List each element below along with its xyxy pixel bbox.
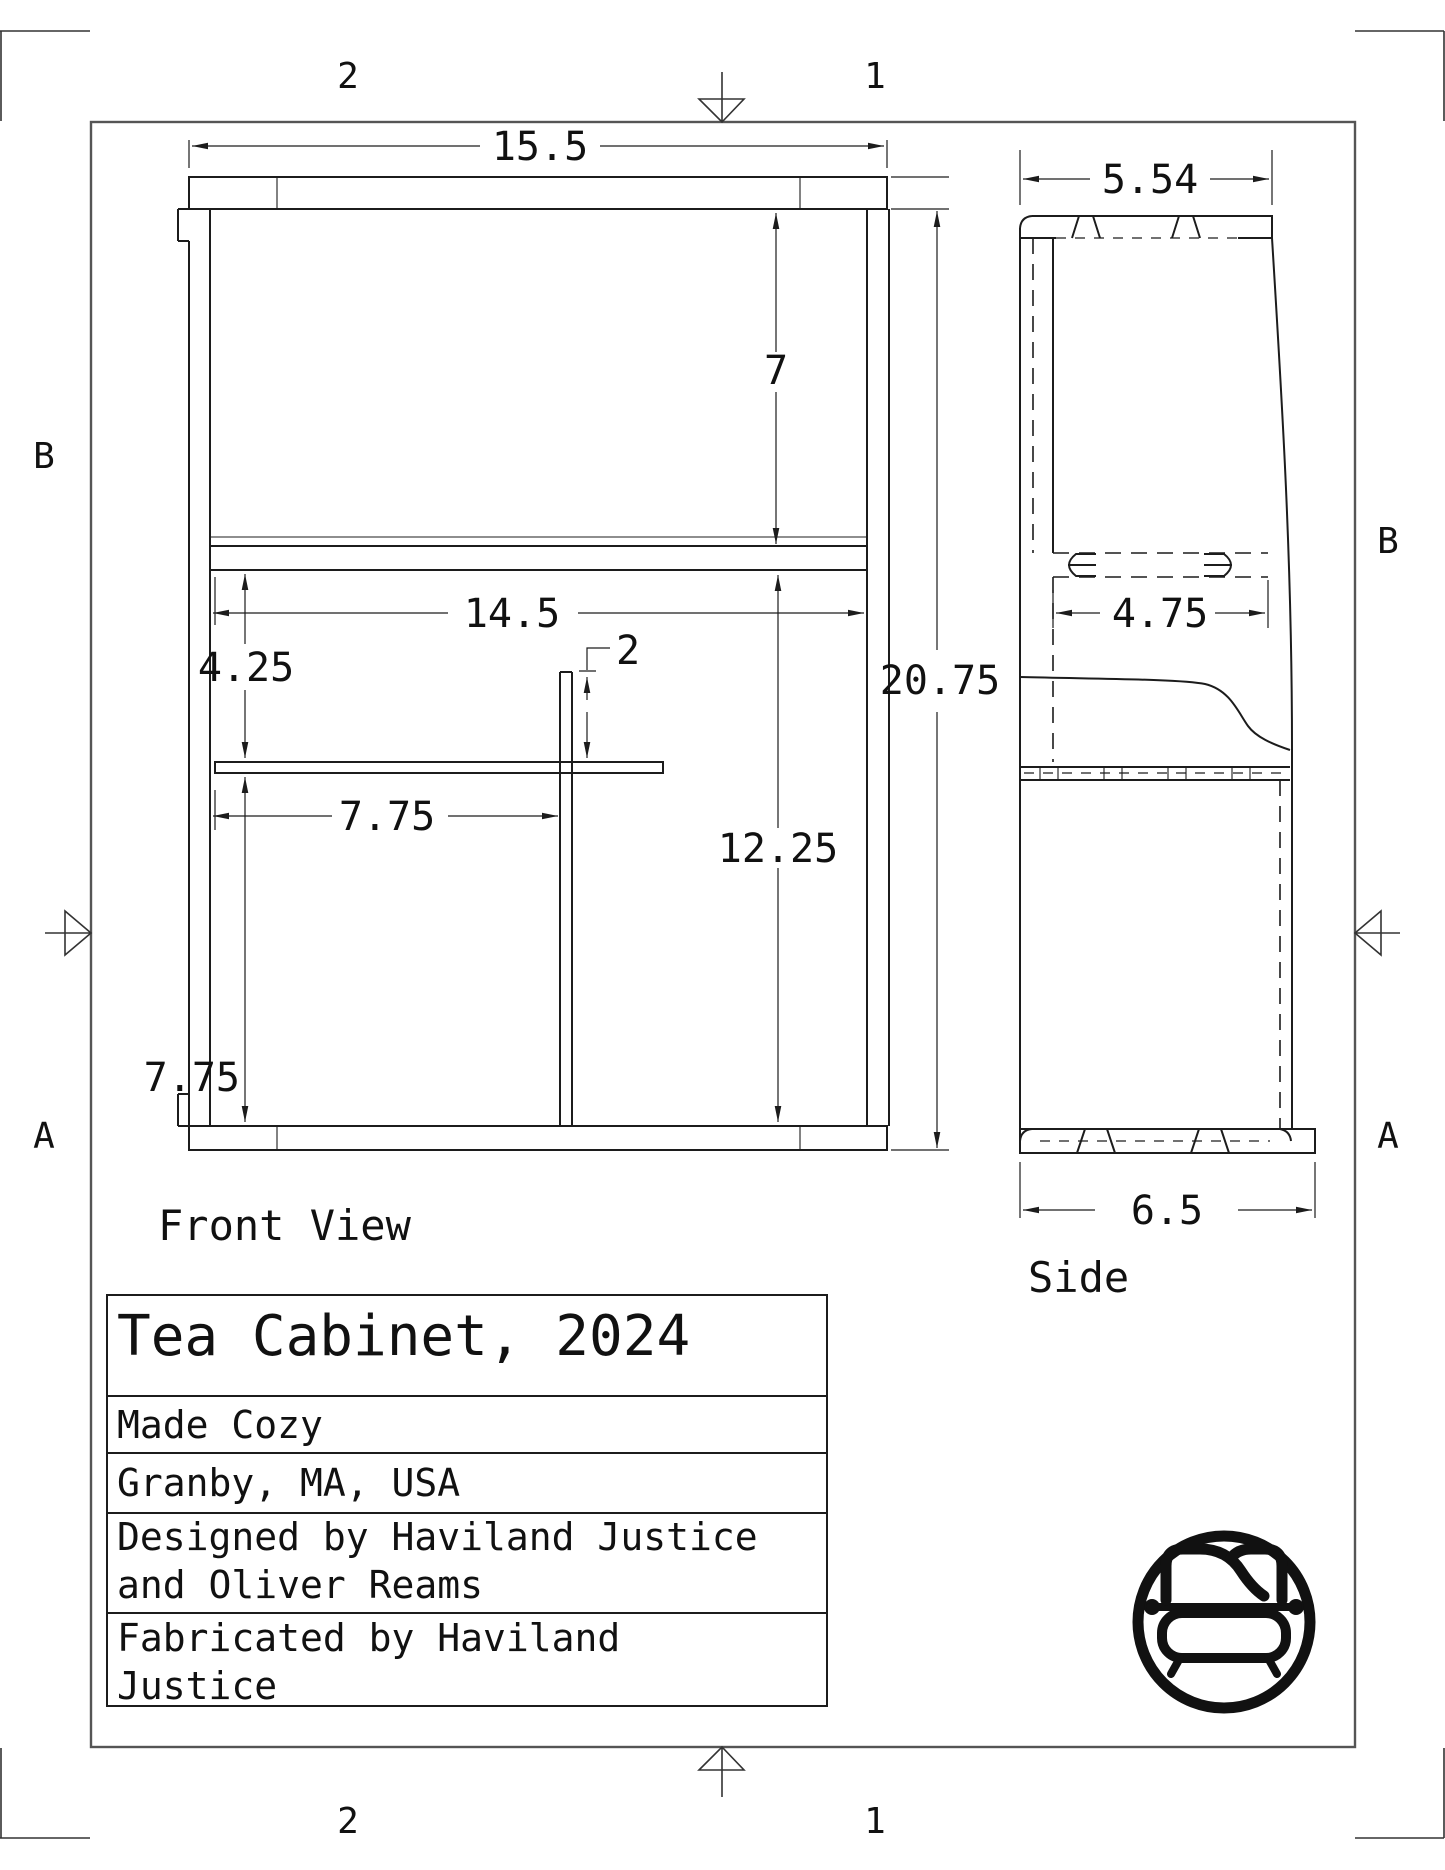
title-block-title: Tea Cabinet, 2024	[117, 1304, 690, 1369]
dim-overall-height: 20.75	[880, 177, 1000, 1150]
front-bottom-board	[178, 1094, 887, 1150]
dim-top-depth: 5.54	[1020, 150, 1272, 205]
zone-label-bottom-right: 1	[864, 1801, 886, 1842]
zone-label-right-lower: A	[1377, 1116, 1399, 1157]
made-cozy-bed-logo-icon	[1138, 1536, 1310, 1708]
front-top-board	[178, 177, 887, 241]
side-view: 5.54 4.75 6.5 Side	[1020, 150, 1315, 1302]
svg-text:14.5: 14.5	[464, 591, 560, 637]
dim-overall-width: 15.5	[189, 124, 887, 170]
front-view-label: Front View	[158, 1201, 412, 1250]
title-block-fabricated-line1: Fabricated by Haviland	[117, 1616, 620, 1660]
side-profile-curve	[1020, 677, 1290, 750]
svg-text:15.5: 15.5	[492, 124, 588, 170]
svg-text:6.5: 6.5	[1131, 1188, 1203, 1234]
title-block-maker: Made Cozy	[117, 1403, 323, 1447]
front-thin-shelf	[215, 762, 663, 773]
svg-text:5.54: 5.54	[1102, 157, 1198, 203]
svg-text:7.75: 7.75	[339, 794, 435, 840]
dim-divider-reveal: 2	[579, 628, 640, 758]
dim-base-depth: 6.5	[1020, 1162, 1315, 1234]
svg-text:4.75: 4.75	[1112, 591, 1208, 637]
center-mark-bottom	[699, 1747, 744, 1797]
dim-right-opening-height: 12.25	[718, 575, 838, 1122]
svg-text:20.75: 20.75	[880, 658, 1000, 704]
zone-label-left-lower: A	[33, 1116, 55, 1157]
corner-mark-top-left	[0, 31, 90, 121]
title-block-location: Granby, MA, USA	[117, 1461, 460, 1505]
dim-top-opening-height: 7	[764, 213, 788, 544]
svg-text:12.25: 12.25	[718, 826, 838, 872]
title-block-fabricated-line2: Justice	[117, 1664, 277, 1708]
svg-text:7.75: 7.75	[144, 1055, 240, 1101]
title-block-designed-line2: and Oliver Reams	[117, 1563, 483, 1607]
dim-shelf-depth: 4.75	[1053, 580, 1268, 637]
svg-text:4.25: 4.25	[198, 645, 294, 691]
corner-mark-bottom-left	[0, 1748, 90, 1838]
dim-interior-width: 14.5	[213, 577, 864, 637]
center-mark-right	[1355, 911, 1400, 955]
side-bottom-board	[1020, 1129, 1315, 1153]
side-top-board	[1020, 216, 1272, 1129]
front-fixed-shelf	[210, 537, 867, 570]
svg-text:2: 2	[616, 628, 640, 674]
side-back-edge-curve	[1272, 238, 1292, 1129]
zone-label-top-right: 1	[864, 56, 886, 97]
zone-label-right-upper: B	[1377, 521, 1399, 562]
cad-drawing: 2 1 B A B A 2 1	[0, 0, 1445, 1870]
zone-label-left-upper: B	[33, 436, 55, 477]
corner-mark-top-right	[1355, 31, 1444, 121]
side-mid-joint	[1020, 767, 1290, 780]
title-block: Tea Cabinet, 2024 Made Cozy Granby, MA, …	[107, 1295, 827, 1708]
side-view-label: Side	[1028, 1253, 1129, 1302]
center-mark-top	[699, 72, 744, 122]
side-hidden-shelf	[1053, 553, 1268, 577]
drawing-sheet: 2 1 B A B A 2 1	[0, 0, 1445, 1870]
front-divider	[560, 672, 572, 1126]
svg-text:7: 7	[764, 348, 788, 394]
center-mark-left	[45, 911, 91, 955]
dim-shelf-length: 7.75	[213, 790, 558, 840]
zone-label-top-left: 2	[337, 56, 359, 97]
dim-left-opening-height: 7.75	[144, 777, 245, 1122]
front-view: 15.5 7 14.5 4.25 2	[144, 124, 1001, 1250]
zone-label-bottom-left: 2	[337, 1801, 359, 1842]
corner-mark-bottom-right	[1355, 1748, 1444, 1838]
title-block-designed-line1: Designed by Haviland Justice	[117, 1515, 758, 1559]
dim-shelf-gap: 4.25	[198, 574, 294, 758]
